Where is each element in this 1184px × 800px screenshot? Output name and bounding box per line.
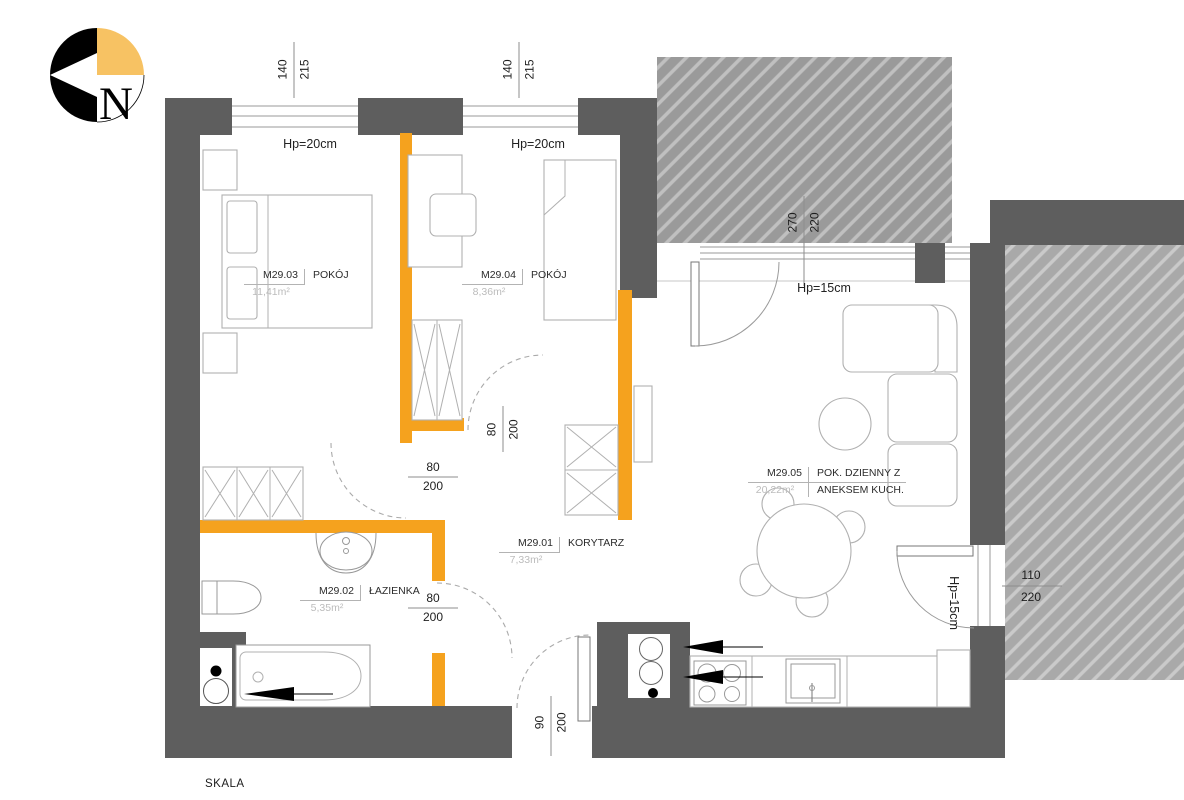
- dining-table: [757, 504, 851, 598]
- bedroom1-furniture: [203, 150, 372, 373]
- toilet-tank: [202, 581, 217, 614]
- nightstand: [203, 333, 237, 373]
- dim-bedroom2-door-height: 200: [508, 402, 521, 458]
- orange-wall-bathroom-right-a: [432, 533, 445, 581]
- room-label-bedroom2: M29.04 POKÓJ 8,36m²: [462, 269, 569, 299]
- room-label-corridor: M29.01 KORYTARZ 7,33m²: [499, 537, 626, 567]
- entry-door-leaf: [578, 637, 590, 721]
- dim-window2-width: 140: [502, 42, 515, 98]
- dim-window1-height: 215: [299, 42, 312, 98]
- dim-balcony-top-width: 270: [787, 195, 800, 251]
- wall-living-pier: [915, 243, 945, 283]
- balcony-door-top-swing: [695, 262, 779, 346]
- wall-bottom-right: [592, 706, 1005, 758]
- wall-right-upper: [970, 243, 1005, 545]
- dim-bedroom1-door-width: 80: [413, 461, 453, 474]
- room-id: M29.01: [499, 537, 559, 553]
- living-furniture: [634, 305, 957, 617]
- room-id: M29.04: [462, 269, 522, 285]
- hp-label-window1: Hp=20cm: [268, 137, 352, 151]
- room-name: KORYTARZ: [559, 537, 626, 553]
- dim-window2-height: 215: [524, 42, 537, 98]
- wall-top-a: [165, 98, 232, 135]
- room-area: 8,36m²: [462, 285, 522, 300]
- room-id: M29.02: [300, 585, 360, 601]
- floor-plan-drawing: [0, 0, 1184, 800]
- dim-balcony-right-height: 220: [1011, 591, 1051, 604]
- nightstand: [203, 150, 237, 190]
- room-name: POKÓJ: [304, 269, 351, 285]
- wardrobe: [203, 467, 303, 520]
- balcony-door-right-leaf: [897, 546, 973, 556]
- room-area: 20,22m²: [748, 483, 808, 498]
- wall-top-pier: [358, 98, 463, 135]
- pipe-dot: [211, 666, 222, 677]
- sofa-seat-top: [843, 305, 938, 372]
- hp-label-window2: Hp=20cm: [496, 137, 580, 151]
- balcony-door-top-leaf: [691, 262, 699, 346]
- room-name-line2: ANEKSEM KUCH.: [808, 483, 906, 498]
- room-label-bathroom: M29.02 ŁAZIENKA 5,35m²: [300, 585, 422, 615]
- dim-entry-width: 90: [534, 695, 547, 751]
- scale-label: SKALA: [205, 778, 245, 790]
- orange-wall-bathroom-right-b: [432, 653, 445, 706]
- room-id: M29.05: [748, 467, 808, 483]
- north-letter: N: [99, 81, 133, 128]
- hp-label-living-right: Hp=15cm: [947, 561, 961, 645]
- wardrobe: [412, 320, 462, 420]
- wall-bottom-left: [165, 706, 512, 758]
- room-area: 7,33m²: [499, 553, 559, 568]
- balcony-door-right-swing: [897, 551, 974, 628]
- room-label-living: M29.05 POK. DZIENNY Z 20,22m² ANEKSEM KU…: [748, 467, 906, 497]
- wall-column-bedroom2: [620, 98, 657, 298]
- dim-bedroom1-door-height: 200: [413, 480, 453, 493]
- hp-label-living-top: Hp=15cm: [781, 281, 867, 295]
- floor-plan-page: N SKALA 140 215 140 215 270 220 90 200 8…: [0, 0, 1184, 800]
- balcony-door-right-sill: [970, 545, 1005, 628]
- dim-window1-width: 140: [277, 42, 290, 98]
- washer-drum: [204, 679, 229, 704]
- terrace-right: [1005, 245, 1184, 680]
- fridge: [937, 650, 970, 707]
- orange-wall-bathroom-top: [200, 520, 445, 533]
- bathtub: [236, 645, 370, 707]
- wall-left: [165, 98, 200, 758]
- dim-balcony-top-height: 220: [809, 195, 822, 251]
- dim-bedroom2-door-width: 80: [486, 402, 499, 458]
- compass-orange-quarter: [97, 28, 144, 75]
- room-id: M29.03: [244, 269, 304, 285]
- room-name: POK. DZIENNY Z: [808, 467, 906, 483]
- tv-board: [634, 386, 652, 462]
- room-name: ŁAZIENKA: [360, 585, 422, 601]
- bedroom2-door-swing: [468, 355, 543, 430]
- shaft-dot: [648, 688, 658, 698]
- dim-entry-height: 200: [556, 695, 569, 751]
- shaft-pipe: [640, 638, 663, 661]
- sofa-seat-right: [888, 374, 957, 442]
- room-name: POKÓJ: [522, 269, 569, 285]
- bathroom-fixtures: [202, 532, 376, 707]
- shaft-pipe: [640, 662, 663, 685]
- pillow: [227, 201, 257, 253]
- wardrobe: [565, 425, 618, 515]
- coffee-table: [819, 398, 871, 450]
- chair: [430, 194, 476, 236]
- dim-balcony-right-width: 110: [1011, 569, 1051, 582]
- room-label-bedroom1: M29.03 POKÓJ 11,41m²: [244, 269, 351, 299]
- room-area: 5,35m²: [300, 601, 360, 616]
- wall-terrace-band: [990, 200, 1184, 245]
- toilet-bowl: [217, 581, 261, 614]
- room-area: 11,41m²: [244, 285, 304, 300]
- orange-wall-living: [618, 290, 632, 520]
- bedroom1-door-swing: [331, 443, 406, 518]
